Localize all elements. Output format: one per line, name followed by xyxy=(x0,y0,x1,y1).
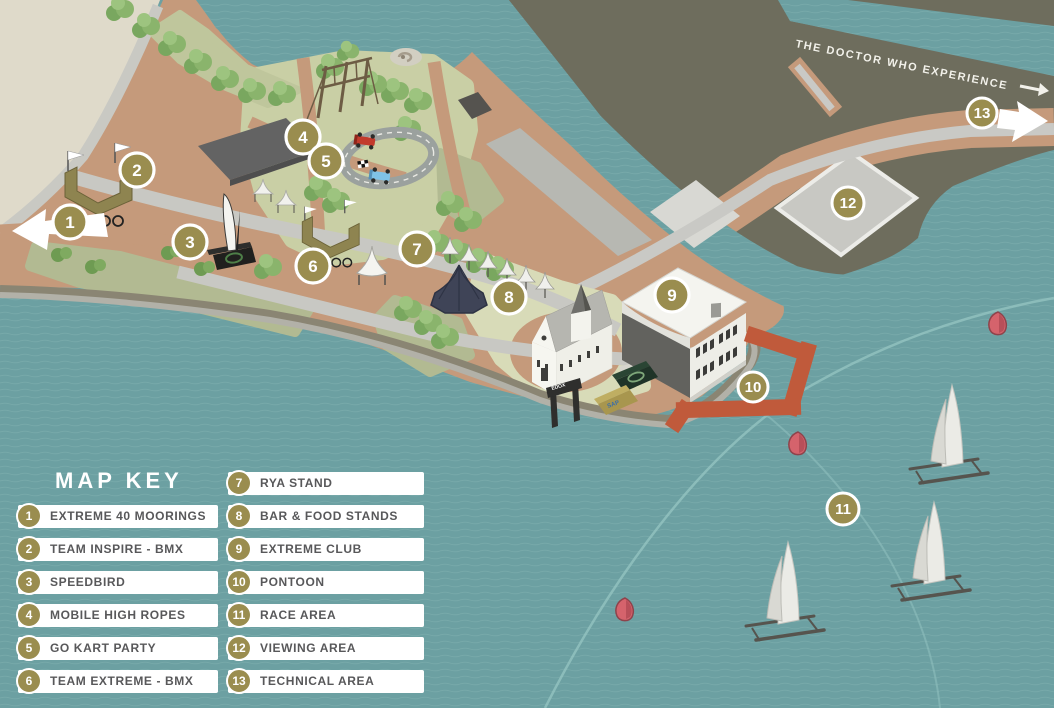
svg-text:2: 2 xyxy=(132,161,141,180)
map-key-item-2: 2 TEAM INSPIRE - BMX xyxy=(18,538,218,561)
map-marker-12[interactable]: 12 xyxy=(832,187,864,219)
map-key-item-12: 12 VIEWING AREA xyxy=(228,637,424,660)
map-marker-3[interactable]: 3 xyxy=(173,225,207,259)
key-badge-12: 12 xyxy=(226,635,252,661)
map-key-item-6: 6 TEAM EXTREME - BMX xyxy=(18,670,218,693)
map-marker-9[interactable]: 9 xyxy=(655,278,689,312)
key-badge-5: 5 xyxy=(16,635,42,661)
map-marker-2[interactable]: 2 xyxy=(120,153,154,187)
map-key-item-1: 1 EXTREME 40 MOORINGS xyxy=(18,505,218,528)
svg-text:4: 4 xyxy=(298,128,308,147)
key-badge-9: 9 xyxy=(226,536,252,562)
svg-text:11: 11 xyxy=(835,501,851,518)
map-key-item-5: 5 GO KART PARTY xyxy=(18,637,218,660)
map-marker-10[interactable]: 10 xyxy=(738,372,768,402)
svg-text:3: 3 xyxy=(185,233,194,252)
map-canvas: EDOX SAP THE DOCTOR WHO EXPERIENCE 1 2 3… xyxy=(0,0,1054,708)
svg-text:6: 6 xyxy=(308,257,317,276)
map-marker-1[interactable]: 1 xyxy=(53,205,87,239)
svg-text:9: 9 xyxy=(667,286,676,305)
map-key-item-8: 8 BAR & FOOD STANDS xyxy=(228,505,424,528)
svg-text:5: 5 xyxy=(321,152,330,171)
key-badge-1: 1 xyxy=(16,503,42,529)
event-site-map: EDOX SAP THE DOCTOR WHO EXPERIENCE 1 2 3… xyxy=(0,0,1054,708)
map-key-item-10: 10 PONTOON xyxy=(228,571,424,594)
map-key-item-9: 9 EXTREME CLUB xyxy=(228,538,424,561)
key-badge-4: 4 xyxy=(16,602,42,628)
key-badge-8: 8 xyxy=(226,503,252,529)
map-key-item-3: 3 SPEEDBIRD xyxy=(18,571,218,594)
map-key-item-13: 13 TECHNICAL AREA xyxy=(228,670,424,693)
key-badge-10: 10 xyxy=(226,569,252,595)
svg-text:10: 10 xyxy=(745,379,762,396)
svg-text:1: 1 xyxy=(65,213,74,232)
map-key-item-4: 4 MOBILE HIGH ROPES xyxy=(18,604,218,627)
map-key-item-11: 11 RACE AREA xyxy=(228,604,424,627)
map-marker-7[interactable]: 7 xyxy=(400,232,434,266)
map-key-title: MAP KEY xyxy=(55,468,183,494)
map-marker-13[interactable]: 13 xyxy=(967,98,997,128)
key-badge-2: 2 xyxy=(16,536,42,562)
key-badge-11: 11 xyxy=(226,602,252,628)
map-marker-8[interactable]: 8 xyxy=(492,280,526,314)
svg-text:7: 7 xyxy=(412,240,421,259)
svg-text:12: 12 xyxy=(840,195,857,212)
map-marker-6[interactable]: 6 xyxy=(296,249,330,283)
map-marker-5[interactable]: 5 xyxy=(309,144,343,178)
key-badge-6: 6 xyxy=(16,668,42,694)
swirl-sculpture xyxy=(390,48,422,66)
key-badge-7: 7 xyxy=(226,470,252,496)
svg-text:13: 13 xyxy=(974,105,991,122)
key-badge-13: 13 xyxy=(226,668,252,694)
map-key-item-7: 7 RYA STAND xyxy=(228,472,424,495)
svg-text:8: 8 xyxy=(504,288,513,307)
key-badge-3: 3 xyxy=(16,569,42,595)
map-marker-11[interactable]: 11 xyxy=(827,493,859,525)
